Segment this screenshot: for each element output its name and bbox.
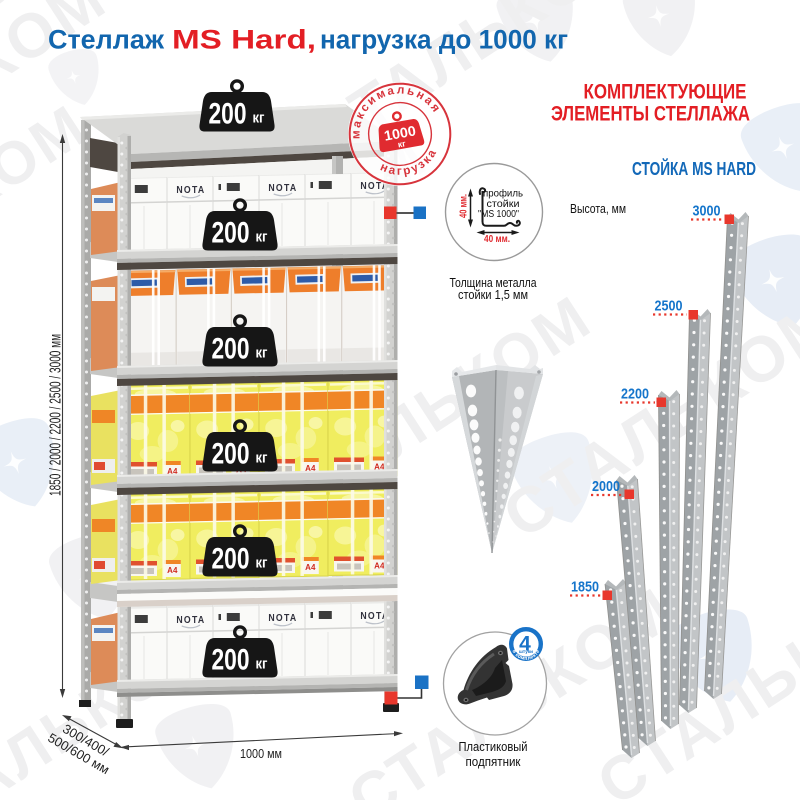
svg-text:200: 200 — [209, 98, 247, 131]
svg-text:A4: A4 — [167, 566, 178, 575]
svg-text:40 мм.: 40 мм. — [459, 194, 470, 218]
svg-text:1000 мм: 1000 мм — [240, 746, 282, 761]
svg-text:200: 200 — [212, 644, 250, 677]
svg-text:3000: 3000 — [693, 203, 721, 220]
svg-text:кг: кг — [256, 346, 268, 362]
svg-text:1850: 1850 — [571, 579, 599, 596]
svg-text:нагрузка до 1000 кг: нагрузка до 1000 кг — [320, 25, 568, 55]
svg-text:штуки: штуки — [519, 649, 533, 654]
svg-text:"MS 1000": "MS 1000" — [478, 209, 519, 220]
svg-text:подпятник: подпятник — [466, 754, 521, 769]
svg-text:Пластиковый: Пластиковый — [459, 739, 528, 754]
svg-text:200: 200 — [212, 438, 250, 471]
svg-text:NOTA: NOTA — [268, 612, 297, 624]
svg-text:200: 200 — [212, 543, 250, 576]
svg-text:Высота, мм: Высота, мм — [570, 201, 626, 216]
svg-text:NOTA: NOTA — [176, 614, 205, 626]
svg-text:A4: A4 — [305, 563, 316, 572]
svg-text:профиль: профиль — [483, 188, 523, 200]
svg-text:40 мм.: 40 мм. — [484, 234, 510, 245]
svg-text:кг: кг — [256, 657, 268, 673]
svg-text:1850 / 2000 / 2200 / 2500 / 30: 1850 / 2000 / 2200 / 2500 / 3000 мм — [48, 334, 65, 496]
svg-text:стойки 1,5 мм: стойки 1,5 мм — [458, 288, 528, 302]
svg-text:NOTA: NOTA — [268, 182, 297, 194]
svg-text:кг: кг — [253, 111, 265, 127]
svg-text:КОМПЛЕКТУЮЩИЕ: КОМПЛЕКТУЮЩИЕ — [584, 81, 747, 104]
svg-text:Стеллаж: Стеллаж — [48, 25, 165, 55]
svg-text:2000: 2000 — [592, 478, 620, 495]
svg-text:СТОЙКА MS HARD: СТОЙКА MS HARD — [632, 158, 756, 179]
svg-text:кг: кг — [256, 230, 268, 246]
svg-text:2500: 2500 — [655, 298, 683, 315]
svg-text:A4: A4 — [374, 562, 385, 571]
svg-text:ЭЛЕМЕНТЫ СТЕЛЛАЖА: ЭЛЕМЕНТЫ СТЕЛЛАЖА — [551, 103, 750, 126]
svg-text:NOTA: NOTA — [176, 184, 205, 196]
svg-text:кг: кг — [256, 556, 268, 572]
svg-text:200: 200 — [212, 217, 250, 250]
svg-text:200: 200 — [212, 333, 250, 366]
svg-text:MS Hard,: MS Hard, — [172, 25, 316, 55]
svg-text:2200: 2200 — [621, 386, 649, 403]
svg-text:кг: кг — [256, 451, 268, 467]
